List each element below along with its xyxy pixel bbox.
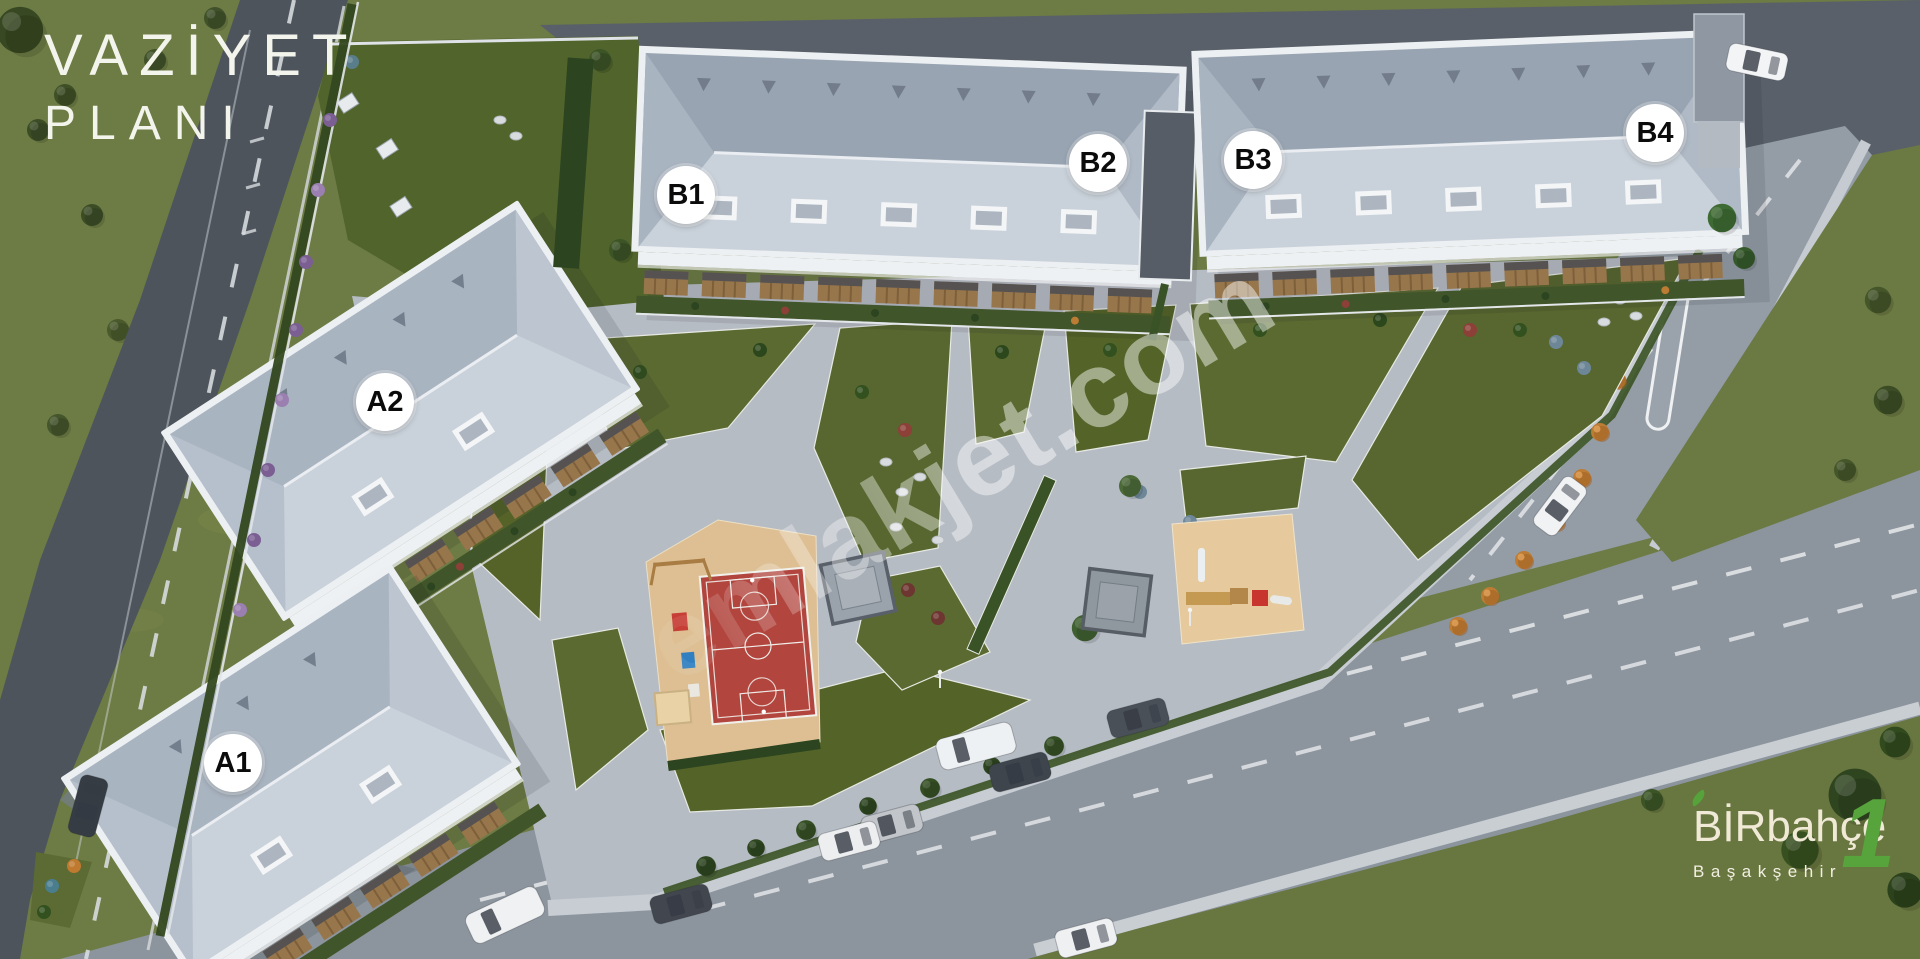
building-badge-b4: B4 — [1626, 104, 1684, 162]
building-b3-b4 — [1191, 28, 1770, 325]
building-badge-b3: B3 — [1224, 131, 1282, 189]
basketball-area — [643, 520, 820, 766]
building-badge-a1: A1 — [204, 734, 262, 792]
badge-label: B3 — [1234, 144, 1271, 177]
plaza — [820, 552, 895, 624]
badge-label: A1 — [214, 747, 251, 780]
basketball-court — [700, 568, 817, 725]
site-plan-render: emlakjet.com VAZİYET PLANI A1 A2 B1 B2 B… — [0, 0, 1920, 959]
badge-label: B4 — [1636, 117, 1673, 150]
building-b1-b2 — [629, 46, 1205, 342]
playground-sand — [1172, 514, 1304, 644]
plaza — [1083, 569, 1152, 636]
building-badge-b2: B2 — [1069, 134, 1127, 192]
badge-label: B2 — [1079, 147, 1116, 180]
badge-label: A2 — [366, 386, 403, 419]
b2-b3-connector — [1139, 111, 1197, 281]
badge-label: B1 — [667, 179, 704, 212]
building-badge-b1: B1 — [657, 166, 715, 224]
building-badge-a2: A2 — [356, 373, 414, 431]
